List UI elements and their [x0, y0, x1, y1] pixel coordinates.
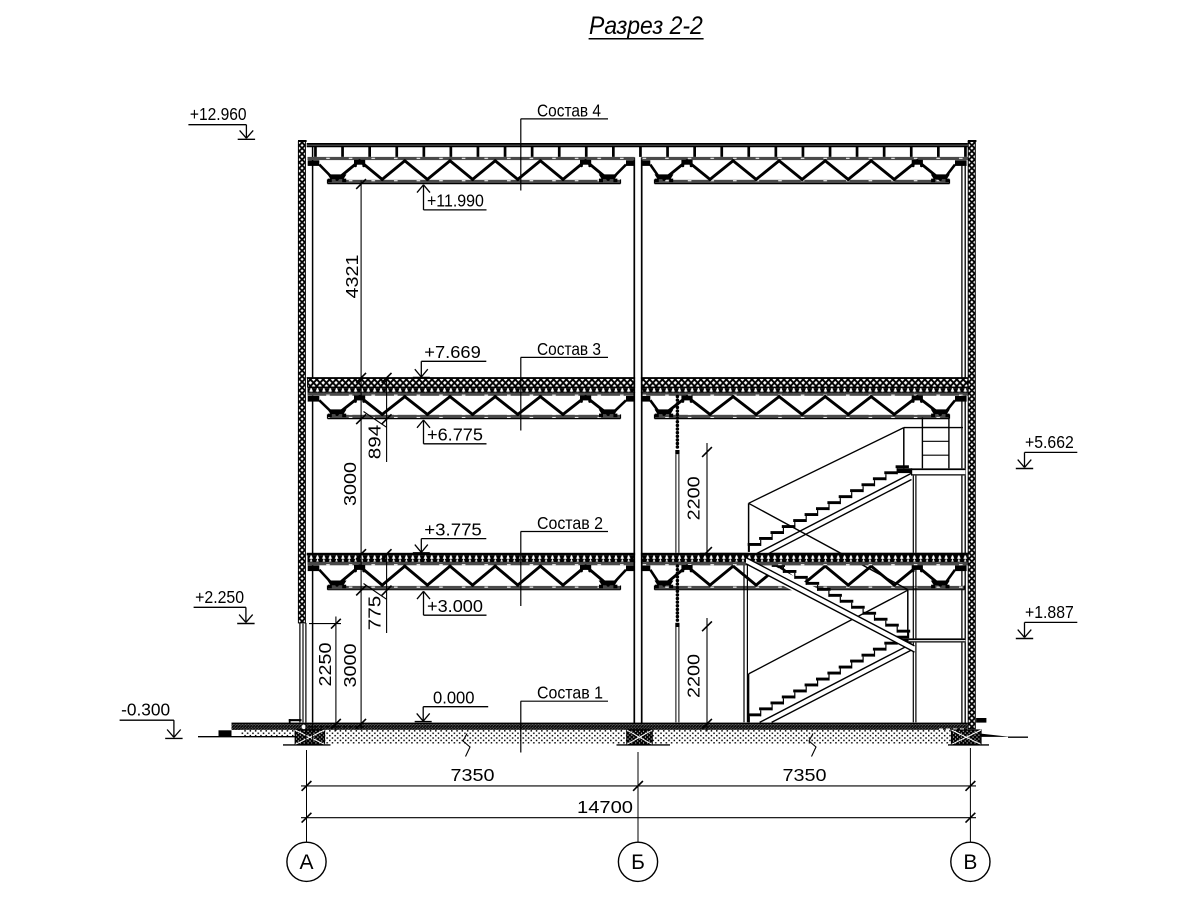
svg-text:Разрез 2-2: Разрез 2-2 — [589, 12, 703, 40]
svg-text:3000: 3000 — [340, 643, 360, 687]
svg-text:+3.000: +3.000 — [427, 596, 483, 616]
svg-text:+12.960: +12.960 — [190, 104, 247, 124]
svg-text:Б: Б — [631, 851, 645, 874]
svg-text:Состав 2: Состав 2 — [537, 513, 603, 533]
svg-text:7350: 7350 — [783, 765, 827, 785]
svg-text:-0.300: -0.300 — [121, 700, 170, 720]
svg-text:4321: 4321 — [342, 255, 362, 299]
svg-text:В: В — [963, 851, 977, 874]
svg-text:+11.990: +11.990 — [427, 191, 484, 211]
svg-text:0.000: 0.000 — [433, 688, 475, 708]
svg-text:Состав 1: Состав 1 — [537, 683, 603, 703]
svg-text:775: 775 — [365, 596, 385, 631]
svg-text:+1.887: +1.887 — [1025, 602, 1074, 622]
svg-text:2200: 2200 — [684, 654, 704, 698]
svg-text:7350: 7350 — [451, 765, 495, 785]
svg-text:2250: 2250 — [315, 642, 335, 686]
svg-text:+6.775: +6.775 — [427, 425, 483, 445]
svg-text:+2.250: +2.250 — [195, 587, 244, 607]
svg-text:+5.662: +5.662 — [1025, 432, 1074, 452]
svg-text:А: А — [299, 851, 313, 874]
svg-text:2200: 2200 — [684, 476, 704, 520]
svg-text:+3.775: +3.775 — [424, 519, 482, 539]
svg-text:Состав 4: Состав 4 — [537, 100, 601, 120]
svg-text:894: 894 — [365, 425, 385, 460]
svg-text:+7.669: +7.669 — [424, 342, 481, 362]
svg-text:14700: 14700 — [577, 797, 633, 817]
svg-text:Состав 3: Состав 3 — [537, 339, 601, 359]
svg-text:3000: 3000 — [340, 462, 360, 506]
